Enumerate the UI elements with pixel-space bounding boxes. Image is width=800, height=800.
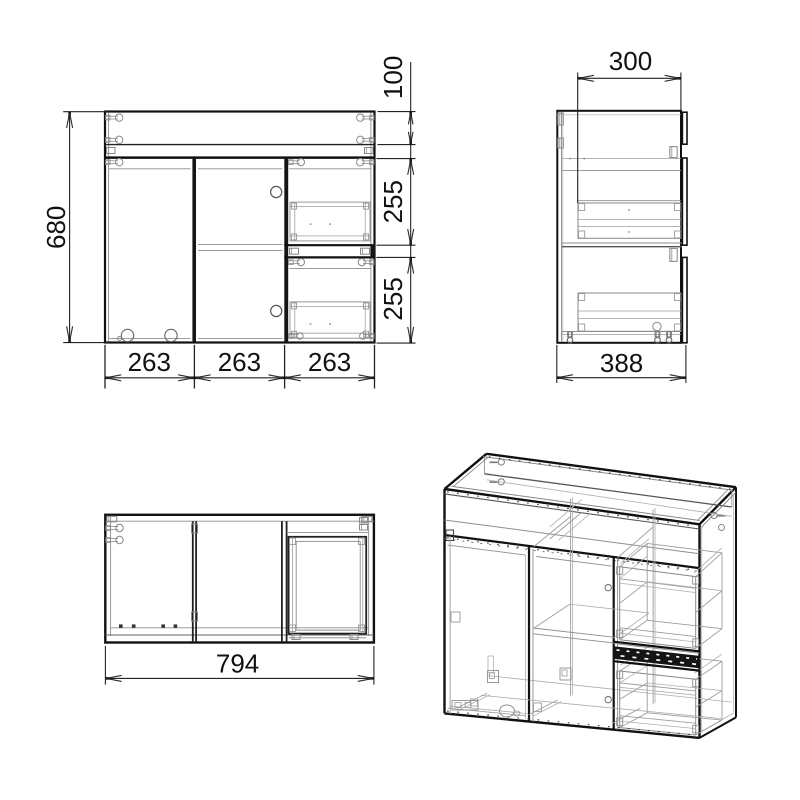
svg-text:100: 100	[378, 56, 408, 99]
svg-text:300: 300	[609, 46, 652, 76]
svg-text:255: 255	[378, 180, 408, 223]
svg-text:680: 680	[41, 206, 71, 249]
svg-text:388: 388	[600, 348, 643, 378]
svg-text:263: 263	[308, 347, 351, 377]
svg-text:794: 794	[216, 649, 259, 679]
svg-text:263: 263	[128, 347, 171, 377]
svg-text:263: 263	[218, 347, 261, 377]
svg-text:255: 255	[378, 277, 408, 320]
